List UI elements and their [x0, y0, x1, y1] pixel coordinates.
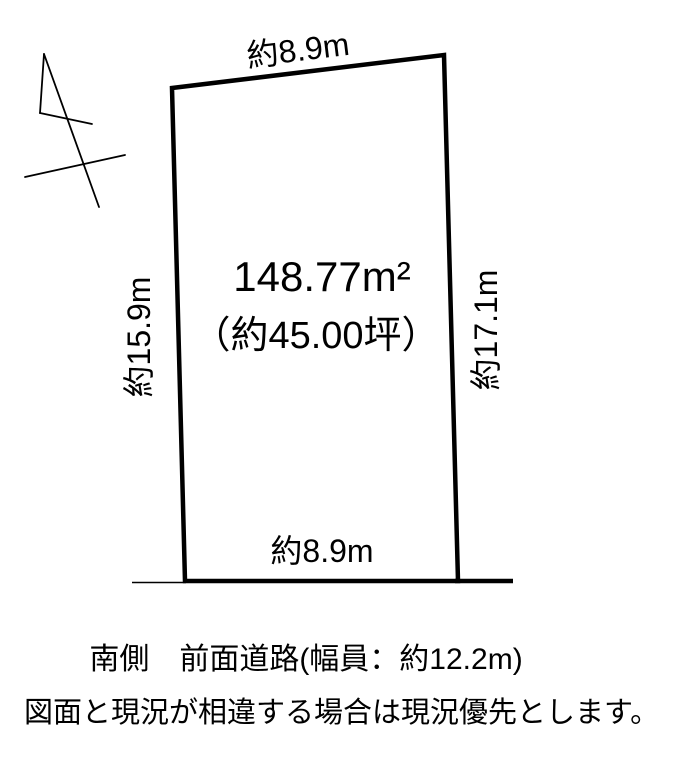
- north-arrow-icon: [25, 54, 125, 207]
- land-plot-diagram: 約8.9m 約15.9m 約17.1m 約8.9m 148.77m² （約45.…: [0, 0, 677, 763]
- dimension-left-label: 約15.9m: [123, 277, 155, 398]
- front-road-note: 南側 前面道路(幅員：約12.2m): [89, 645, 522, 675]
- dimension-bottom-label: 約8.9m: [270, 535, 373, 567]
- dimension-right-label: 約17.1m: [470, 270, 502, 391]
- plot-area-square-meters: 148.77m²: [233, 256, 410, 298]
- plot-area-tsubo: （約45.00坪）: [192, 317, 439, 355]
- disclaimer-note: 図面と現況が相違する場合は現況優先とします。: [24, 698, 659, 730]
